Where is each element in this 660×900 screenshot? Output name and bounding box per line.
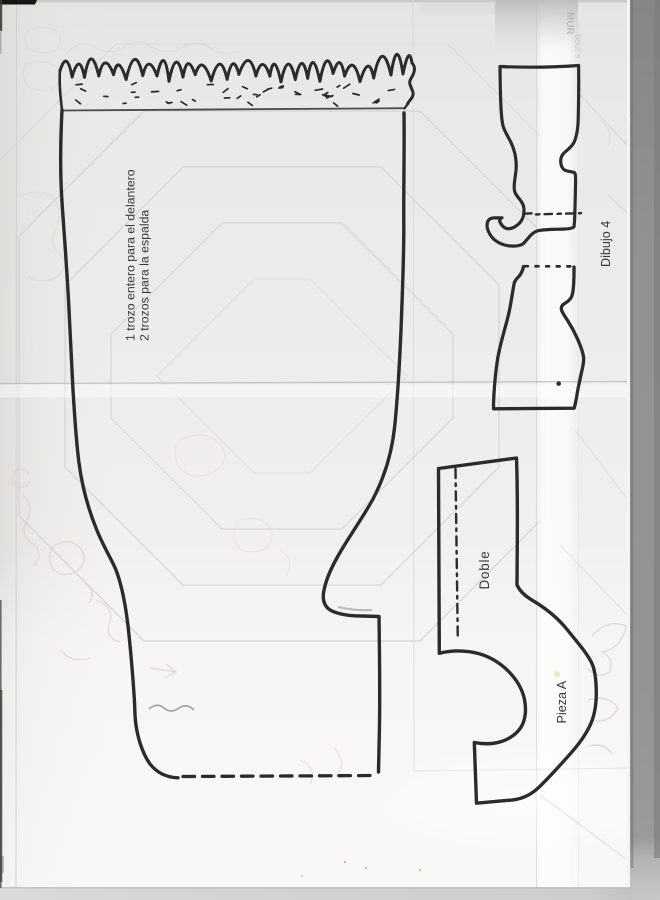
svg-text:Dibujo 4: Dibujo 4 <box>599 221 613 267</box>
svg-text:1 trozo entero para el delante: 1 trozo entero para el delantero <box>124 169 138 341</box>
svg-text:MUR: MUR <box>564 12 575 36</box>
svg-text:Pieza A: Pieza A <box>555 680 569 723</box>
svg-text:bout s: bout s <box>573 34 583 59</box>
svg-text:Doble: Doble <box>477 551 492 590</box>
svg-text:2 trozos para la espalda: 2 trozos para la espalda <box>138 210 152 341</box>
